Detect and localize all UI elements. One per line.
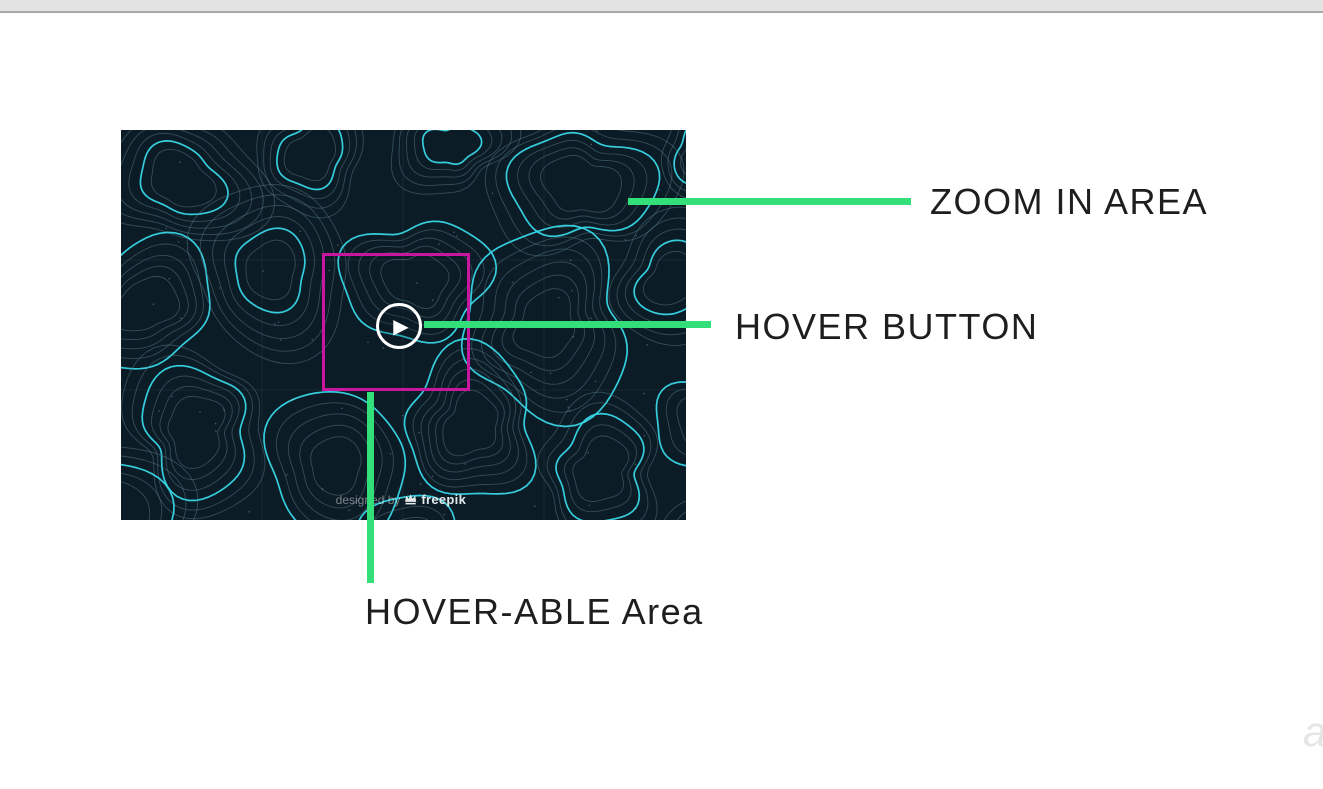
hoverable-area-label: HOVER-ABLE Area <box>365 592 704 632</box>
freepik-watermark: designed by freepik <box>336 492 466 507</box>
zoom-area-pointer-line <box>628 198 911 205</box>
watermark-brand-text: freepik <box>421 492 466 507</box>
browser-top-bar <box>0 0 1323 13</box>
zoom-in-area-label: ZOOM IN AREA <box>930 182 1208 222</box>
hover-button-label: HOVER BUTTON <box>735 307 1038 347</box>
play-button[interactable]: ▶ <box>376 303 422 349</box>
demo-page: designed by freepik ▶ ZOOM IN AREA HOVER… <box>0 0 1323 789</box>
freepik-crown-icon <box>404 493 417 506</box>
page-corner-artifact: a <box>1303 708 1323 756</box>
hover-button-pointer-line <box>424 321 711 328</box>
play-icon: ▶ <box>393 316 408 336</box>
hoverable-area-pointer-line <box>367 392 374 583</box>
